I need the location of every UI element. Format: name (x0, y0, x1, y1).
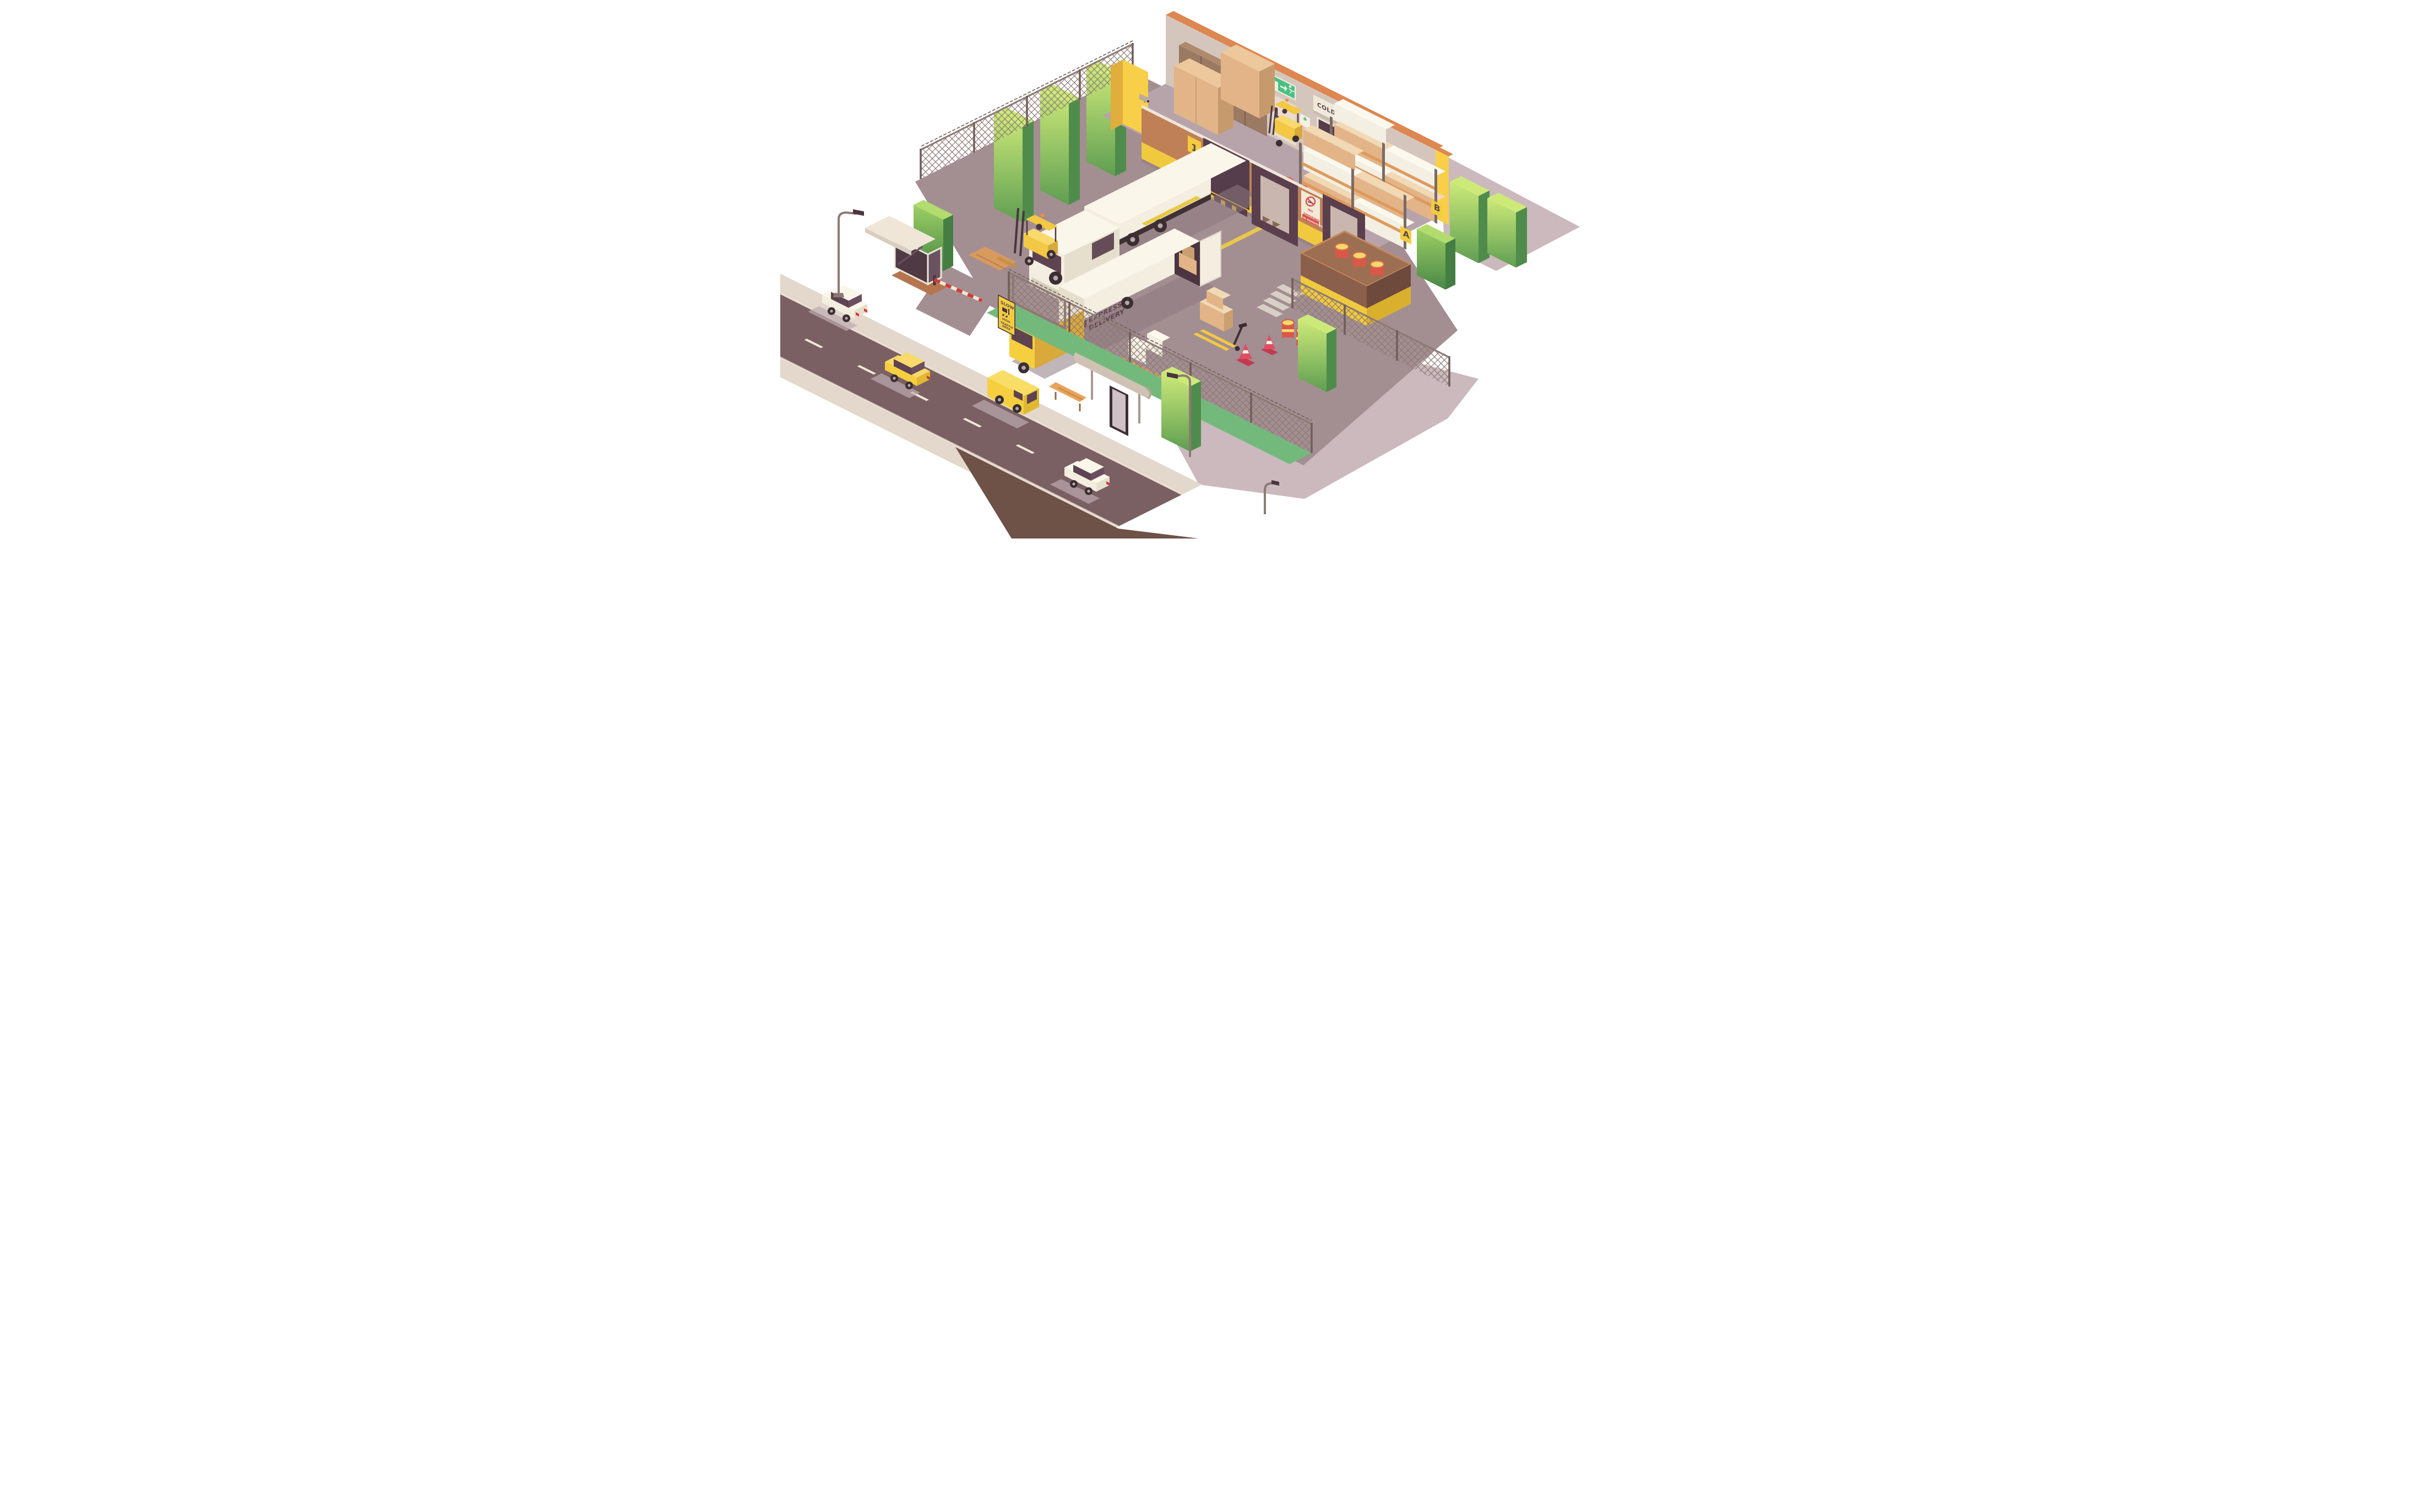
green-cross-icon (1305, 117, 1306, 121)
bench (1049, 382, 1086, 411)
ad-panel (1110, 385, 1128, 436)
exit-runner-icon (1289, 85, 1292, 88)
cut-face-dark (1111, 59, 1123, 130)
hedge-block-bottom (1161, 367, 1201, 452)
lamp-base (833, 293, 844, 297)
hedge-block (1298, 314, 1336, 392)
van-open-door (1200, 231, 1221, 286)
beacon (1041, 214, 1045, 217)
tree-block (1450, 176, 1490, 263)
driver (1282, 109, 1287, 114)
illustration-stage: COLD STORAGE FIRE EXTINGUISHER (780, 0, 1644, 539)
wheel (1292, 135, 1299, 142)
wheel (1276, 140, 1282, 146)
driver (1036, 224, 1042, 230)
warehouse-illustration: COLD STORAGE FIRE EXTINGUISHER (780, 0, 1644, 539)
street-lamp (833, 209, 864, 297)
lamp-head (853, 209, 864, 216)
beacon (1285, 99, 1289, 102)
